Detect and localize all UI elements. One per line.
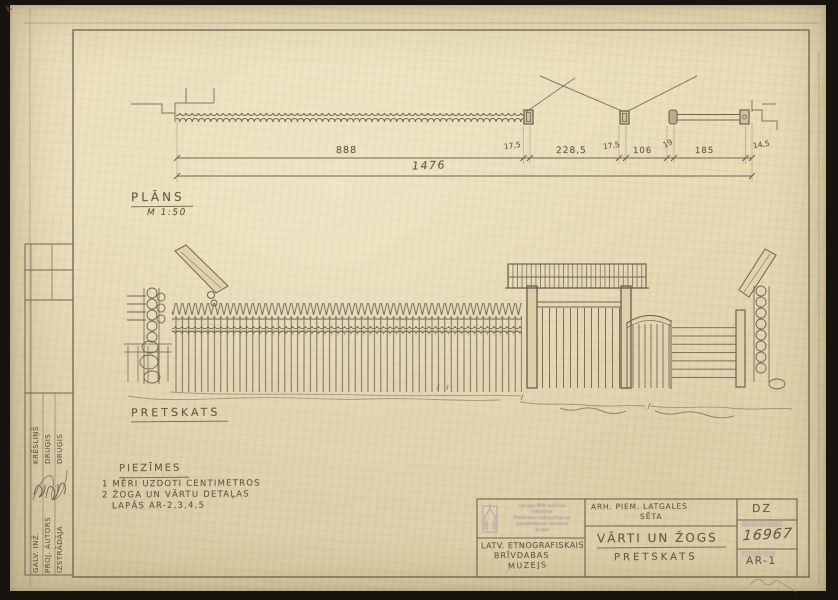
plan-drawing: [131, 76, 777, 130]
signature-role-3: IZSTRĀDĀJA: [57, 487, 64, 573]
dim-185: 185: [695, 147, 714, 156]
dim-106: 106: [633, 147, 652, 156]
elevation-label: PRETSKATS: [131, 407, 228, 423]
signature-role-2: PROJ. AUTORS: [45, 487, 52, 573]
dim-888: 888: [336, 146, 357, 156]
signature-role-1: GALV. INŽ.: [33, 487, 40, 573]
note-line-2: 2 ŽOGA UN VĀRTU DETAĻAS: [102, 490, 250, 500]
note-line-3: LAPĀS AR-2,3,4,5: [112, 502, 205, 511]
dimension-lines: [174, 122, 755, 182]
dim-228-5: 228,5: [556, 147, 587, 156]
scanned-drawing-sheet: PLĀNS M 1:50 888 17,5 228,5 17,5 106 19 …: [0, 0, 838, 600]
plan-scale-label: M 1:50: [147, 209, 187, 218]
signature-name-1: KRĒSLIŅŠ: [33, 404, 40, 464]
dim-total-1476: 1476: [412, 159, 446, 171]
stamp-text-line: grupa: [499, 529, 585, 534]
series-code: DZ: [752, 503, 772, 514]
notes-title: PIEZĪMES: [119, 464, 190, 478]
stamp-text-line: Zinātniski restaurēšanas: [499, 517, 585, 522]
stamp-text-line: ministrija: [499, 511, 585, 516]
sheet-title: VĀRTI UN ŽOGS: [597, 532, 726, 549]
organization-line-2: BRĪVDABAS: [494, 552, 549, 560]
plan-label: PLĀNS: [131, 191, 193, 207]
note-line-1: 1 MĒRI UZDOTI CENTIMETROS: [102, 479, 261, 489]
dim-17-5-a: 17,5: [504, 141, 522, 151]
stamp-emblem: [483, 504, 497, 532]
organization-line-1: LATV. ETNOGRAFISKAIS: [481, 542, 584, 551]
stamp-text-line: projektēšanas kantoris: [499, 523, 585, 528]
signature-name-3: DRUĢIS: [57, 404, 64, 464]
inventory-number: 16967: [742, 527, 793, 544]
sheet-number: AR-1: [746, 556, 777, 567]
project-line-2: SĒTA: [640, 513, 663, 521]
project-line-1: ARH. PIEM. LATGALES: [591, 503, 688, 511]
signature-name-2: DRUĢIS: [45, 404, 52, 464]
stamp-text-line: Latvijas PSR kultūras: [499, 505, 585, 510]
dim-17-5-b: 17,5: [603, 141, 621, 151]
organization-line-3: MUZEJS: [508, 561, 548, 570]
sheet-subtitle: PRETSKATS: [614, 553, 698, 564]
elevation-drawing: [124, 245, 792, 418]
